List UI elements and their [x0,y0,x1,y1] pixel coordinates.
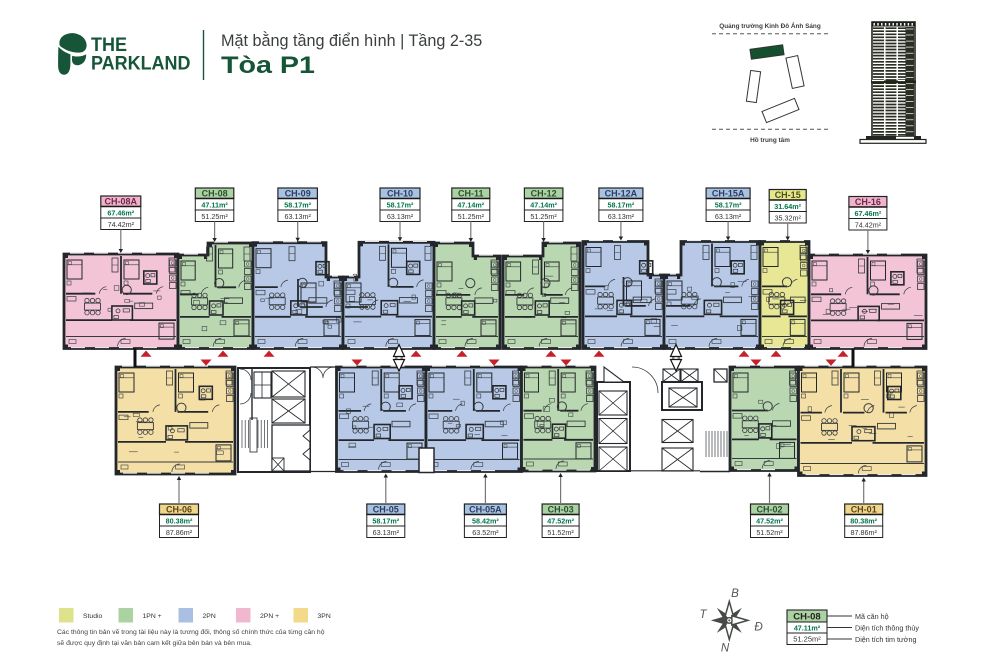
svg-text:Studio: Studio [83,613,102,620]
svg-text:CH-15: CH-15 [775,190,801,200]
svg-text:74.42m²: 74.42m² [108,220,135,229]
svg-text:63.13m²: 63.13m² [608,212,635,221]
svg-text:CH-11: CH-11 [458,188,484,198]
svg-text:Đ: Đ [754,622,763,634]
svg-text:CH-09: CH-09 [285,188,311,198]
svg-text:B: B [731,588,739,600]
svg-text:Mã căn hộ: Mã căn hộ [855,612,889,621]
svg-text:CH-12: CH-12 [531,188,557,198]
svg-text:Diện tích thông thủy: Diện tích thông thủy [855,623,919,632]
svg-text:CH-03: CH-03 [548,504,574,514]
svg-text:Các thông tin bản vẽ trong tài: Các thông tin bản vẽ trong tài liệu này … [57,627,325,636]
svg-text:51.52m²: 51.52m² [547,528,574,537]
svg-text:67.46m²: 67.46m² [855,209,882,218]
svg-text:80.38m²: 80.38m² [850,517,877,526]
svg-text:3PN: 3PN [318,613,331,620]
svg-text:51.25m²: 51.25m² [793,635,821,644]
svg-text:Mặt bằng tầng điển hình | Tầng: Mặt bằng tầng điển hình | Tầng 2-35 [221,31,482,50]
svg-text:51.25m²: 51.25m² [458,212,485,221]
svg-text:63.52m²: 63.52m² [472,528,499,537]
svg-text:35.32m²: 35.32m² [775,213,802,222]
svg-text:63.13m²: 63.13m² [285,212,312,221]
svg-text:CH-08: CH-08 [202,188,228,198]
svg-text:CH-08: CH-08 [793,611,820,622]
svg-text:47.11m²: 47.11m² [794,624,821,633]
svg-text:T: T [699,609,707,621]
svg-text:CH-10: CH-10 [387,188,413,198]
svg-text:CH-16: CH-16 [855,197,881,207]
svg-text:1PN +: 1PN + [143,613,162,620]
svg-text:51.25m²: 51.25m² [530,212,557,221]
svg-text:87.86m²: 87.86m² [851,528,878,537]
svg-text:87.86m²: 87.86m² [166,528,193,537]
svg-text:CH-15A: CH-15A [712,188,745,198]
svg-text:CH-01: CH-01 [851,504,877,514]
svg-text:N: N [721,643,730,655]
svg-text:51.25m²: 51.25m² [201,212,228,221]
svg-text:2PN +: 2PN + [260,613,279,620]
svg-text:31.64m²: 31.64m² [774,202,801,211]
svg-text:CH-05A: CH-05A [469,504,502,514]
svg-text:PARKLAND: PARKLAND [91,54,191,75]
svg-text:58.17m²: 58.17m² [715,201,742,210]
svg-text:CH-08A: CH-08A [105,196,138,206]
svg-text:Diện tích tim tường: Diện tích tim tường [855,635,916,644]
svg-text:63.13m²: 63.13m² [715,212,742,221]
svg-text:58.17m²: 58.17m² [387,201,414,210]
svg-text:Hồ trung tâm: Hồ trung tâm [750,135,790,144]
svg-text:63.13m²: 63.13m² [373,528,400,537]
svg-text:67.46m²: 67.46m² [107,209,134,218]
svg-text:74.42m²: 74.42m² [855,220,882,229]
svg-text:47.52m²: 47.52m² [547,517,574,526]
svg-text:47.14m²: 47.14m² [457,201,484,210]
svg-text:58.17m²: 58.17m² [608,201,635,210]
svg-text:sẽ được quy định tại văn bản c: sẽ được quy định tại văn bản cam kết giữ… [57,638,252,647]
svg-text:CH-12A: CH-12A [605,188,638,198]
svg-text:Tòa P1: Tòa P1 [221,52,315,79]
svg-text:47.11m²: 47.11m² [201,201,228,210]
svg-text:Quảng trường Kinh Đô Ánh Sáng: Quảng trường Kinh Đô Ánh Sáng [719,21,821,30]
svg-text:CH-05: CH-05 [373,504,399,514]
svg-text:47.52m²: 47.52m² [756,517,783,526]
svg-text:51.52m²: 51.52m² [756,528,783,537]
svg-text:63.13m²: 63.13m² [387,212,414,221]
svg-text:58.17m²: 58.17m² [372,517,399,526]
svg-text:58.17m²: 58.17m² [284,201,311,210]
svg-text:58.42m²: 58.42m² [472,517,499,526]
svg-text:CH-06: CH-06 [166,504,192,514]
svg-text:2PN: 2PN [203,613,216,620]
svg-text:80.38m²: 80.38m² [166,517,193,526]
svg-text:CH-02: CH-02 [756,504,782,514]
svg-text:47.14m²: 47.14m² [530,201,557,210]
